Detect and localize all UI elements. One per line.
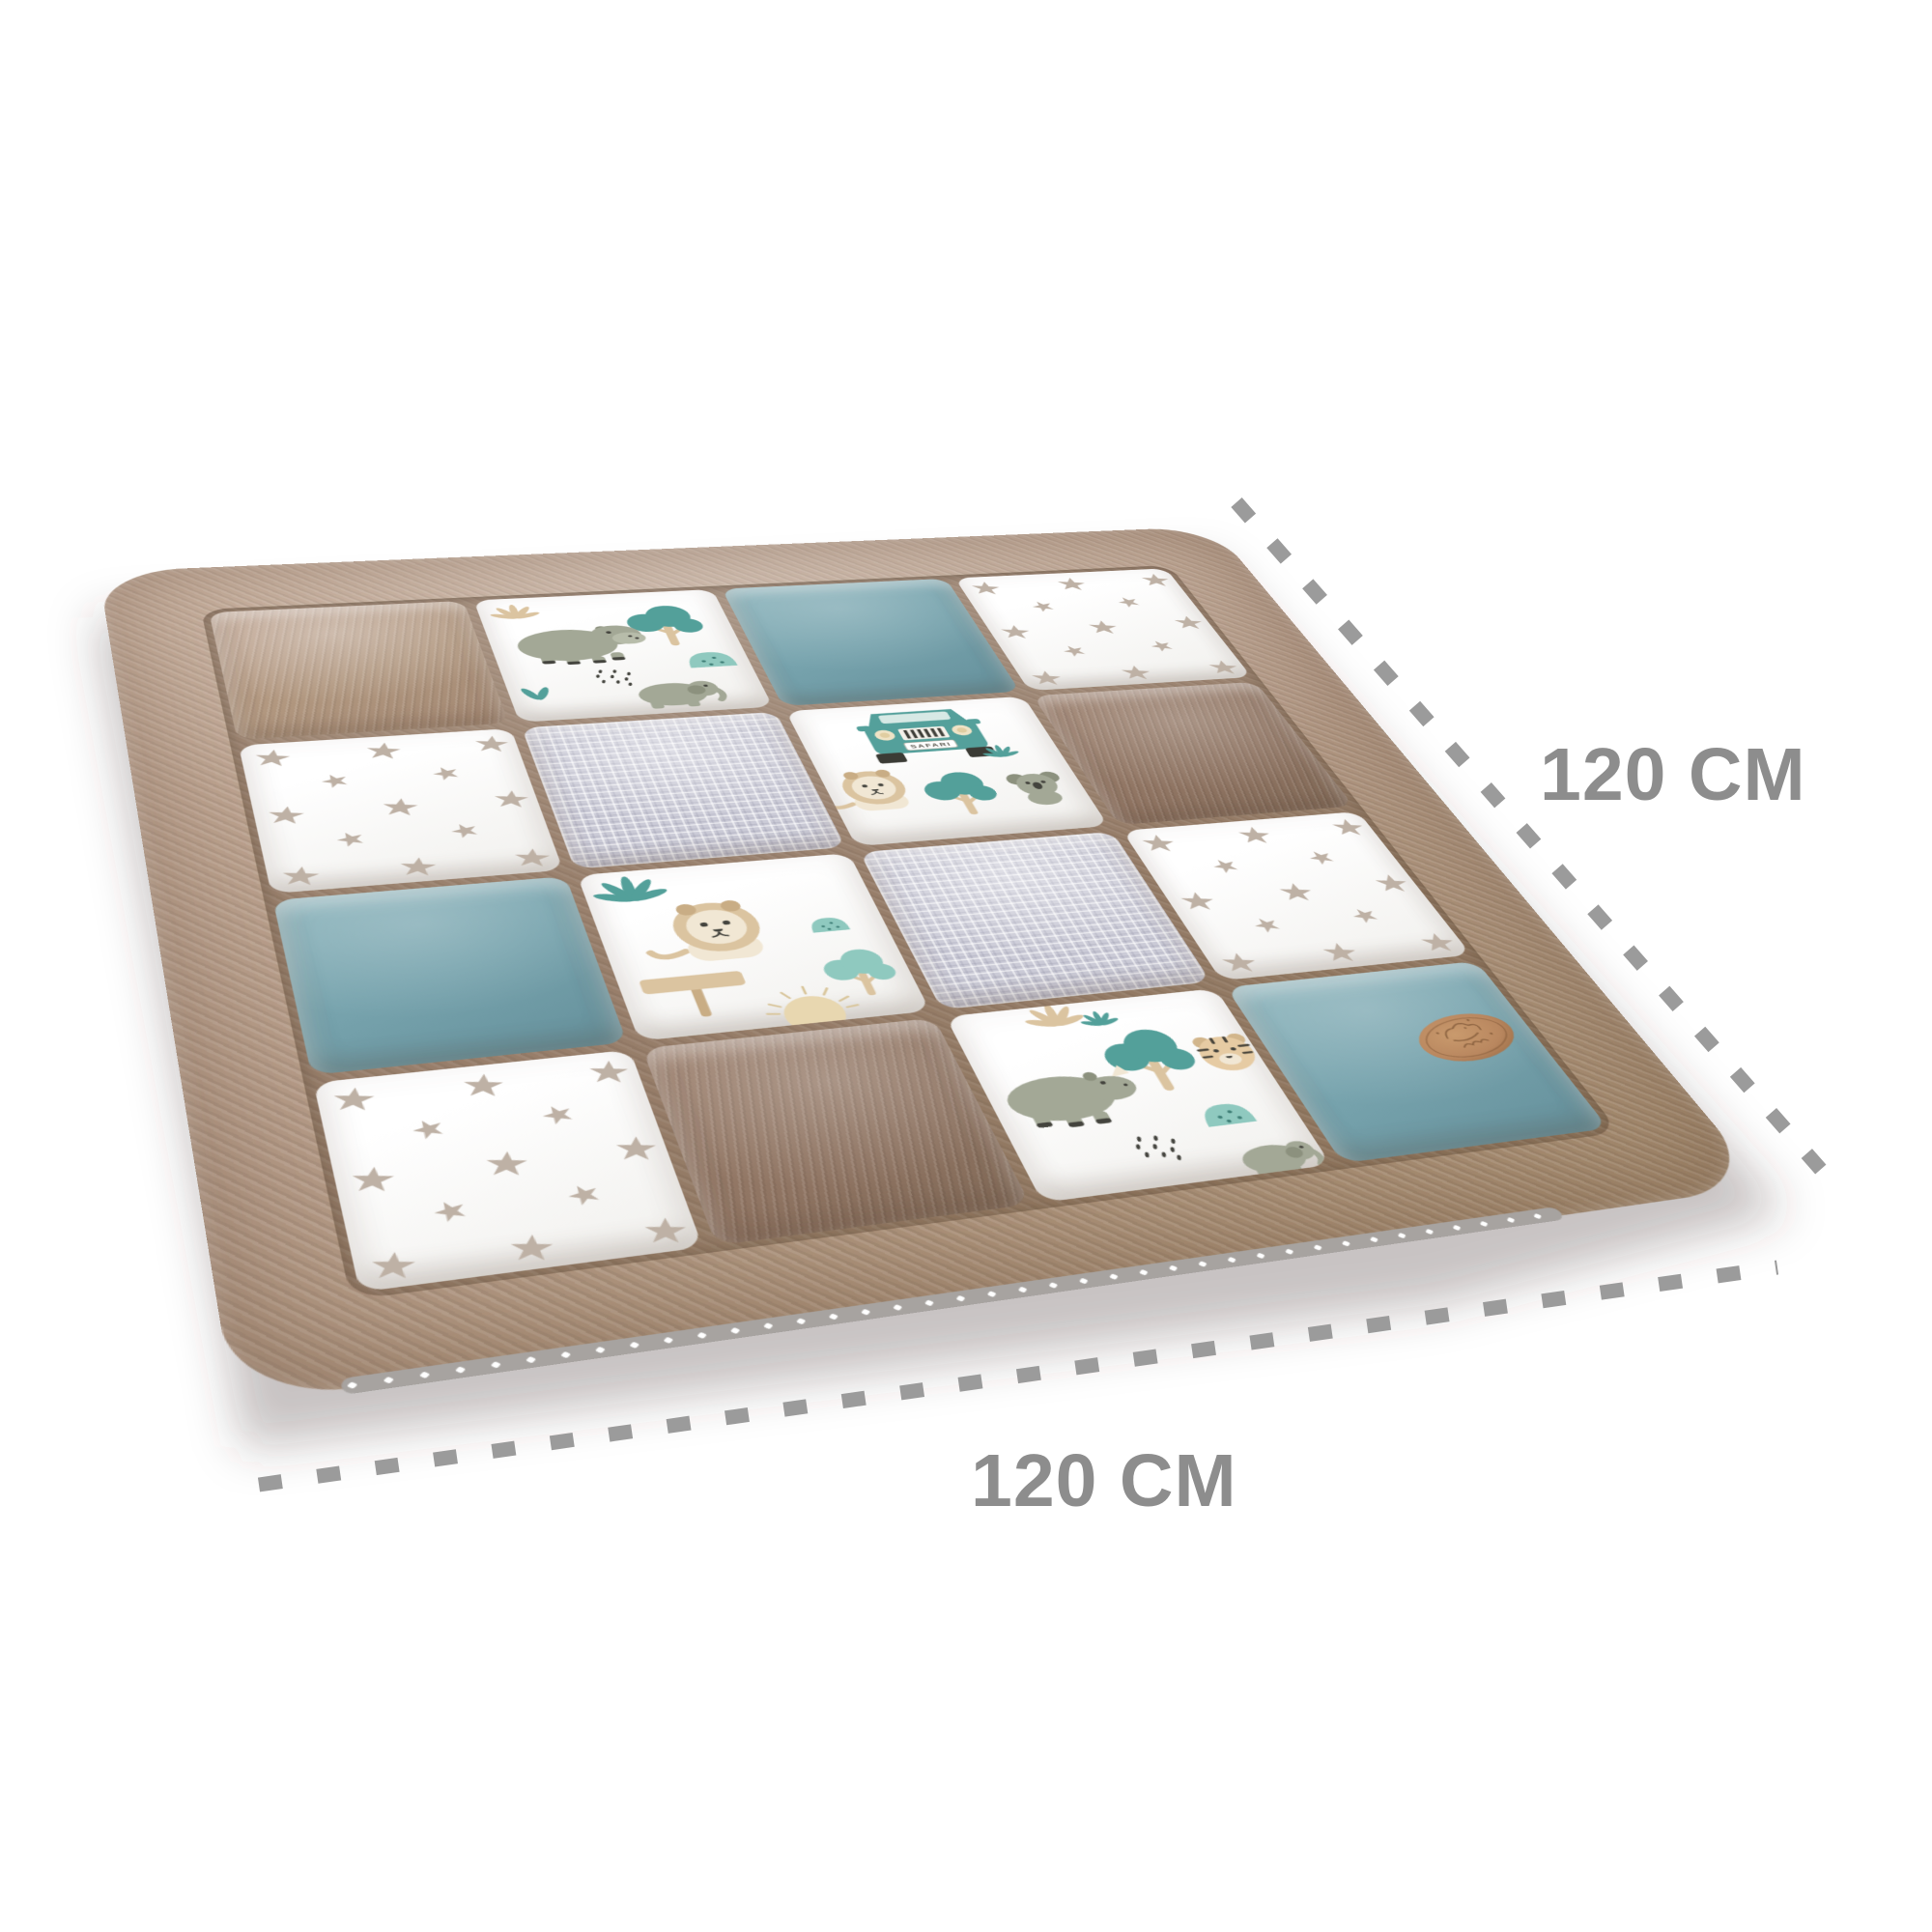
- rhino-motif: [995, 1065, 1155, 1133]
- koala-motif: [1004, 771, 1076, 807]
- patch-velvet-taupe: [209, 601, 508, 740]
- leaf-frond-motif: [585, 873, 673, 906]
- leaf-frond-motif: [1074, 1009, 1122, 1029]
- patch-teal: [272, 876, 627, 1075]
- width-dimension-label: 120 CM: [971, 1438, 1237, 1524]
- leaf-frond-motif: [1015, 1001, 1090, 1031]
- rain-dots-motif: [1134, 1135, 1182, 1160]
- tree-motif: [816, 947, 905, 996]
- elephant-motif: [1235, 1140, 1327, 1179]
- bush-motif: [1197, 1101, 1257, 1127]
- star-pattern: [239, 728, 563, 894]
- play-mat: SAFARI: [99, 526, 1766, 1406]
- rain-dots-motif: [596, 668, 633, 686]
- star-pattern: [313, 1050, 702, 1293]
- bush-motif: [808, 916, 851, 932]
- hippo-motif: [511, 624, 656, 667]
- brand-badge: [1394, 999, 1541, 1077]
- safari-print-hippo: [473, 589, 773, 723]
- height-dimension-label: 120 CM: [1540, 732, 1806, 818]
- signpost-motif: [639, 971, 758, 1022]
- lion-motif: [633, 898, 773, 966]
- bush-motif: [684, 651, 737, 668]
- leaf-frond-motif: [486, 604, 543, 621]
- jeep-motif: SAFARI: [849, 708, 1001, 764]
- patch-waffle: [522, 712, 846, 869]
- brand-badge-art: [1394, 999, 1541, 1077]
- sprout-motif: [518, 686, 555, 701]
- patch-stars: [239, 728, 563, 894]
- patch-stars: [313, 1050, 702, 1293]
- tree-motif: [916, 770, 1007, 814]
- elephant-motif: [634, 680, 727, 709]
- product-photo: SAFARI 120 CM 120 CM: [0, 0, 1932, 1932]
- tiger-motif: [1190, 1033, 1264, 1073]
- patch-grid: SAFARI: [201, 565, 1620, 1300]
- lion-motif: [812, 769, 916, 813]
- patch-safari-hippo: [473, 589, 773, 723]
